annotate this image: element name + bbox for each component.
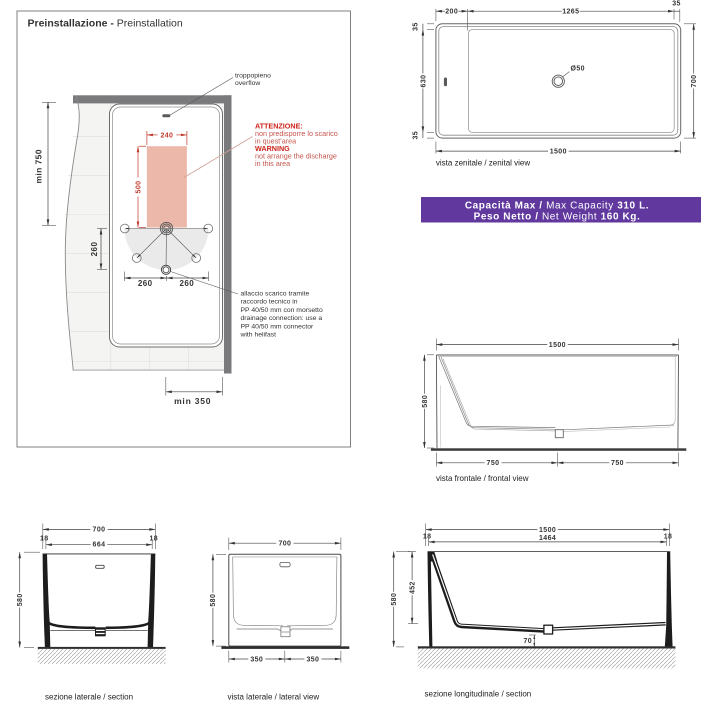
svg-text:overflow: overflow	[235, 80, 260, 87]
svg-text:70: 70	[524, 638, 533, 645]
svg-text:PP 40/50 mm con morsetto: PP 40/50 mm con morsetto	[241, 307, 323, 314]
svg-text:1500: 1500	[539, 527, 556, 534]
svg-text:35: 35	[412, 22, 419, 31]
svg-text:with helifast: with helifast	[240, 332, 277, 339]
svg-text:18: 18	[150, 536, 159, 543]
svg-text:700: 700	[691, 75, 698, 88]
svg-text:750: 750	[487, 460, 500, 467]
svg-text:700: 700	[278, 540, 291, 547]
svg-text:580: 580	[210, 594, 217, 607]
svg-text:200: 200	[445, 8, 458, 15]
svg-text:35: 35	[672, 1, 681, 8]
svg-text:raccordo tecnico in: raccordo tecnico in	[241, 299, 298, 306]
svg-text:260: 260	[179, 279, 194, 288]
svg-text:500: 500	[135, 181, 142, 194]
svg-text:sezione laterale / section: sezione laterale / section	[45, 693, 133, 702]
svg-text:1464: 1464	[539, 535, 556, 542]
svg-text:Ø50: Ø50	[571, 66, 585, 73]
svg-text:vista laterale / lateral view: vista laterale / lateral view	[228, 693, 320, 702]
svg-text:580: 580	[17, 593, 24, 606]
svg-text:in this area: in this area	[255, 159, 290, 168]
svg-text:min 750: min 750	[33, 149, 43, 183]
svg-text:min 350: min 350	[174, 396, 211, 406]
svg-text:Peso Netto / Net Weight 160 Kg: Peso Netto / Net Weight 160 Kg.	[474, 211, 641, 222]
svg-text:750: 750	[611, 460, 624, 467]
svg-text:350: 350	[250, 656, 263, 663]
svg-text:18: 18	[664, 533, 673, 540]
svg-text:sezione longitudinale / sectio: sezione longitudinale / section	[425, 690, 532, 699]
svg-text:260: 260	[90, 242, 99, 257]
svg-text:Preinstallazione - Preinstalla: Preinstallazione - Preinstallation	[28, 18, 183, 30]
svg-text:580: 580	[422, 395, 429, 408]
svg-text:18: 18	[40, 536, 49, 543]
svg-text:240: 240	[160, 132, 173, 139]
svg-text:35: 35	[412, 131, 419, 140]
svg-text:vista frontale / frontal view: vista frontale / frontal view	[436, 474, 529, 483]
svg-text:350: 350	[306, 656, 319, 663]
svg-text:allaccio scarico tramite: allaccio scarico tramite	[241, 291, 310, 298]
svg-text:630: 630	[420, 75, 427, 88]
svg-text:452: 452	[409, 581, 416, 594]
svg-text:1265: 1265	[562, 8, 579, 15]
svg-text:260: 260	[138, 279, 153, 288]
svg-text:vista zenitale / zenital view: vista zenitale / zenital view	[436, 159, 530, 168]
svg-text:18: 18	[423, 533, 432, 540]
svg-text:PP 40/50 mm connector: PP 40/50 mm connector	[241, 323, 315, 330]
svg-text:1500: 1500	[549, 342, 566, 349]
svg-text:664: 664	[93, 541, 106, 548]
svg-text:700: 700	[93, 527, 106, 534]
svg-text:drainage connection: use a: drainage connection: use a	[241, 315, 323, 322]
svg-text:Capacità Max / Max Capacity 31: Capacità Max / Max Capacity 310 L.	[465, 200, 649, 211]
svg-text:1500: 1500	[550, 149, 567, 156]
svg-text:580: 580	[391, 593, 398, 606]
svg-text:troppopieno: troppopieno	[235, 73, 271, 80]
